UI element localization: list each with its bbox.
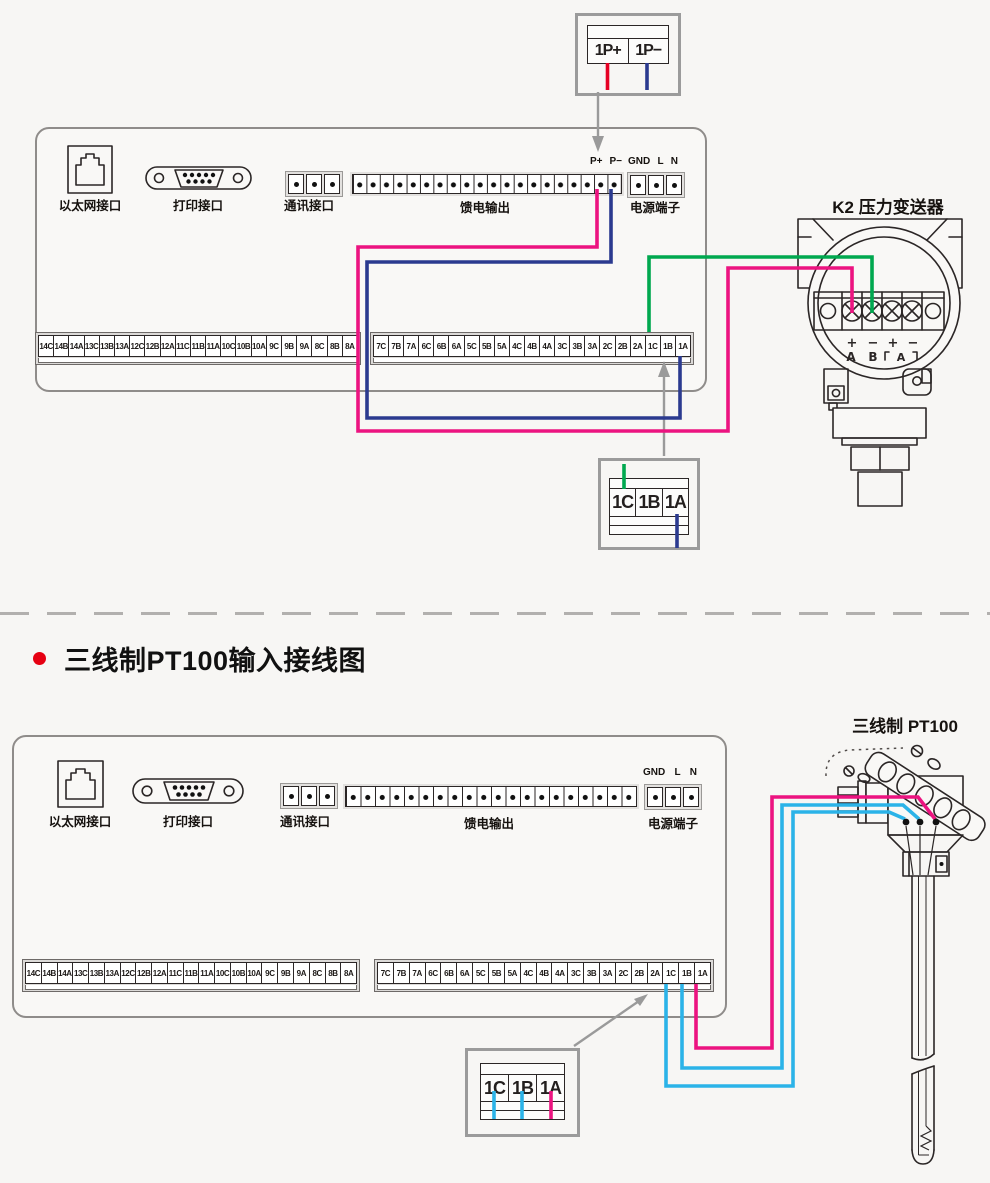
n-label: N [671, 156, 678, 167]
terminal-cell: 9B [277, 963, 293, 983]
terminal-cell: 13B [88, 963, 104, 983]
terminal-cell: 12C [129, 336, 144, 356]
terminal-screw-dot [636, 183, 641, 188]
comm-terminal [319, 786, 335, 806]
terminal-cell: 9C [261, 963, 277, 983]
terminal-cell: 11C [175, 336, 190, 356]
comm-port-block [285, 171, 343, 197]
section-title: 三线制PT100输入接线图 [64, 639, 366, 678]
comm-terminal [306, 174, 322, 194]
printer-port-label: 打印接口 [173, 195, 223, 214]
terminal-cell: 5C [464, 336, 479, 356]
terminal-cell: 2C [599, 336, 614, 356]
detail-terminal-cell: 1A [536, 1075, 564, 1101]
terminal-dot [933, 819, 940, 826]
power-terminal [648, 175, 664, 195]
internal-lead-wires [906, 826, 936, 875]
detail-terminal-cell: 1A [662, 489, 688, 516]
terminal-screw-dot [653, 795, 658, 800]
l-label: L [657, 156, 663, 167]
terminal-letter: B [868, 350, 877, 364]
power-terminal-block [627, 172, 685, 198]
terminal-cell: 3B [569, 336, 584, 356]
terminal-screw-dot [307, 794, 312, 799]
wire-1a-to-pt100-magenta [696, 797, 935, 1048]
terminal-cell: 13C [84, 336, 99, 356]
terminal-cell: 1C [662, 963, 678, 983]
gnd-label: GND [628, 156, 650, 167]
terminal-cell: 4C [520, 963, 536, 983]
detail-terminal-cell: 1B [635, 489, 661, 516]
terminal-cell: 14A [68, 336, 83, 356]
ethernet-port-icon [67, 145, 113, 194]
io-terminal-strip-14-8: 14C14B14A13C13B13A12C12B12A11C11B11A10C1… [22, 959, 360, 992]
terminal-cell: 2A [647, 963, 663, 983]
terminal-cell: 12A [151, 963, 167, 983]
terminal-cell: 13A [114, 336, 129, 356]
lid-swing-dotted-arc [826, 748, 903, 776]
power-terminal-label: 电源端子 [648, 813, 698, 832]
terminal-cell: 1B [678, 963, 694, 983]
terminal-screw-dot [672, 183, 677, 188]
comm-terminal [283, 786, 299, 806]
detail-table-footer [609, 526, 689, 535]
io-terminal-strip-7-1: 7C7B7A6C6B6A5C5B5A4C4B4A3C3B3A2C2B2A1C1B… [374, 959, 714, 992]
feed-output-strip [345, 786, 637, 807]
terminal-cell: 14A [57, 963, 73, 983]
bracket-marks [885, 352, 917, 360]
pt100-sensor-drawing [826, 746, 988, 1165]
terminal-cell: 9A [293, 963, 309, 983]
terminal-sign: + [847, 336, 858, 351]
transmitter-title: K2 压力变送器 [832, 193, 943, 218]
inset-table: 1P+1P− [587, 25, 669, 64]
detail-table-footer [480, 1111, 565, 1120]
inset-terminal-cell: 1P+ [588, 39, 628, 63]
terminal-cell: 1A [694, 963, 710, 983]
comm-port-label: 通讯接口 [284, 195, 334, 214]
terminal-cell: 6C [425, 963, 441, 983]
feed-output-label: 馈电输出 [460, 197, 510, 216]
terminal-cell: 5A [504, 963, 520, 983]
terminal-screw-dot [312, 182, 317, 187]
terminal-cell: 1A [675, 336, 690, 356]
terminal-cell: 13B [99, 336, 114, 356]
terminal-cell: 11A [198, 963, 214, 983]
terminal-cell: 5C [472, 963, 488, 983]
terminal-letter: A [846, 350, 856, 364]
terminal-cell: 6B [433, 336, 448, 356]
detail-table-footer [480, 1102, 565, 1111]
n-label: N [690, 767, 697, 778]
terminal-cell: 11C [167, 963, 183, 983]
ethernet-port-label: 以太网接口 [59, 195, 122, 214]
terminal-cell: 3A [584, 336, 599, 356]
terminal-screw-dot [689, 795, 694, 800]
ethernet-port-icon [57, 760, 104, 808]
terminal-cell: 11A [205, 336, 220, 356]
wiring-diagram-page: 1P+1P− 以太网接口 打印接口 通讯接口 馈电输出 P+ P− [0, 0, 990, 1183]
terminal-cell: 5B [488, 963, 504, 983]
terminal-cell: 9B [281, 336, 296, 356]
printer-port-label: 打印接口 [163, 811, 213, 830]
terminal-dot [903, 819, 910, 826]
bracket-letter: A [897, 351, 906, 364]
terminal-cell: 8B [327, 336, 342, 356]
terminal-cell: 7B [393, 963, 409, 983]
terminal-cell: 13C [72, 963, 88, 983]
terminal-screw-dot [671, 795, 676, 800]
terminal-cell: 5A [494, 336, 509, 356]
strip-ledge [373, 358, 691, 363]
terminal-cell: 10B [235, 336, 250, 356]
terminal-cell: 11B [183, 963, 199, 983]
transmitter-k2-drawing: + − + − A B A [798, 219, 962, 506]
feed-output-label: 馈电输出 [464, 813, 514, 832]
l-label: L [674, 767, 680, 778]
pt100-terminal-dots [903, 819, 940, 826]
terminal-cell: 2B [631, 963, 647, 983]
head-left-block [866, 783, 888, 823]
dashed-divider [0, 612, 990, 615]
terminal-cell: 10C [214, 963, 230, 983]
terminal-cell: 4B [536, 963, 552, 983]
comm-terminal [288, 174, 304, 194]
p-plus-minus-labels: P+ P− [590, 156, 622, 167]
printer-port-icon [145, 162, 252, 194]
detail-table: 1C1B1A [609, 478, 689, 535]
power-terminal [666, 175, 682, 195]
terminal-cell: 9C [266, 336, 281, 356]
terminal-cell: 1C [645, 336, 660, 356]
pt100-title: 三线制 PT100 [852, 712, 958, 737]
power-terminal-label: 电源端子 [630, 197, 680, 216]
terminal-cell: 11B [190, 336, 205, 356]
cable-gland [838, 781, 866, 823]
terminal-cell: 1B [660, 336, 675, 356]
terminal-cell: 14B [41, 963, 57, 983]
terminal-screw-dot [330, 182, 335, 187]
terminal-cell: 12B [135, 963, 151, 983]
terminal-cell: 4A [539, 336, 554, 356]
terminal-screw-dot [294, 182, 299, 187]
p-minus-label: P− [609, 156, 622, 167]
power-input-inset-box: 1P+1P− [575, 13, 681, 96]
power-terminal [630, 175, 646, 195]
open-lid [862, 749, 989, 844]
inset-terminal-cell: 1P− [628, 39, 669, 63]
bottom-instrument-panel: 以太网接口 打印接口 通讯接口 馈电输出 GND L N 电源端子 [12, 735, 727, 1018]
feed-output-strip [352, 174, 622, 194]
ethernet-port-label: 以太网接口 [49, 811, 112, 830]
terminal-sign: − [868, 336, 879, 351]
terminal-cell: 13A [104, 963, 120, 983]
input-terminal-detail-box: 1C1B1A [598, 458, 700, 550]
inset-table-header [587, 25, 669, 39]
power-terminal [665, 787, 681, 807]
strip-ledge [38, 358, 358, 363]
terminal-cell: 10A [251, 336, 266, 356]
terminal-cell: 2A [630, 336, 645, 356]
printer-port-icon [132, 774, 244, 808]
lid-screws [844, 746, 942, 784]
power-terminal [647, 787, 663, 807]
transmitter-mount-and-stem [824, 369, 931, 506]
terminal-cell: 8B [325, 963, 341, 983]
terminal-cell: 3C [567, 963, 583, 983]
comm-port-block [280, 783, 338, 809]
detail-table: 1C1B1A [480, 1063, 565, 1120]
probe-tube [912, 876, 934, 1164]
terminal-sign: + [888, 336, 899, 351]
strip-ledge [25, 985, 357, 990]
comm-terminal [301, 786, 317, 806]
terminal-cell: 6A [456, 963, 472, 983]
terminal-dot [917, 819, 924, 826]
terminal-cell: 7A [403, 336, 418, 356]
terminal-cell: 12B [144, 336, 159, 356]
terminal-cell: 8A [342, 336, 357, 356]
inset-cells: 1P+1P− [587, 39, 669, 64]
terminal-screw-dot [654, 183, 659, 188]
terminal-cell: 8A [340, 963, 356, 983]
p-plus-label: P+ [590, 156, 603, 167]
terminal-cell: 7B [388, 336, 403, 356]
terminal-cell: 7C [374, 336, 388, 356]
detail-cells: 1C1B1A [609, 489, 689, 517]
terminal-cell: 12A [160, 336, 175, 356]
power-terminal-block [644, 784, 702, 810]
terminal-cell: 12C [120, 963, 136, 983]
terminal-cell: 14B [53, 336, 68, 356]
terminal-cell: 4B [524, 336, 539, 356]
terminal-cell: 7C [378, 963, 393, 983]
strip-ledge [377, 985, 711, 990]
terminal-cell: 10C [220, 336, 235, 356]
gnd-label: GND [643, 767, 665, 778]
terminal-screw-dot [325, 794, 330, 799]
terminal-cell: 7A [409, 963, 425, 983]
gnd-l-n-labels: GND L N [628, 156, 678, 167]
top-instrument-panel: 以太网接口 打印接口 通讯接口 馈电输出 P+ P− GND L [35, 127, 707, 392]
terminal-cell: 2B [615, 336, 630, 356]
terminal-screw-dot [289, 794, 294, 799]
terminal-cell: 10B [230, 963, 246, 983]
detail-table-footer [609, 517, 689, 526]
terminal-cell: 8C [309, 963, 325, 983]
terminal-cell: 5B [479, 336, 494, 356]
section-bullet [33, 652, 46, 665]
detail-table-header [609, 478, 689, 489]
detail-cells: 1C1B1A [480, 1075, 565, 1102]
power-terminal [683, 787, 699, 807]
screw-terminals [842, 301, 922, 321]
terminal-cell: 6C [418, 336, 433, 356]
terminal-cell: 14C [26, 963, 41, 983]
comm-port-label: 通讯接口 [280, 811, 330, 830]
detail-terminal-cell: 1B [508, 1075, 536, 1101]
comm-terminal [324, 174, 340, 194]
terminal-cell: 8C [311, 336, 326, 356]
terminal-cell: 10A [246, 963, 262, 983]
terminal-cell: 4C [509, 336, 524, 356]
terminal-cell: 2C [615, 963, 631, 983]
gnd-l-n-labels: GND L N [643, 767, 697, 778]
input-terminal-detail-box: 1C1B1A [465, 1048, 580, 1137]
terminal-sign: − [908, 336, 919, 351]
pt100-resistor-element [921, 1126, 931, 1150]
detail-table-header [480, 1063, 565, 1075]
terminal-cell: 14C [39, 336, 53, 356]
io-terminal-strip-7-1: 7C7B7A6C6B6A5C5B5A4C4B4A3C3B3A2C2B2A1C1B… [370, 332, 694, 365]
probe-collar [903, 852, 949, 876]
head-funnel [888, 835, 963, 852]
io-terminal-strip-14-8: 14C14B14A13C13B13A12C12B12A11C11B11A10C1… [35, 332, 361, 365]
terminal-cell: 6A [448, 336, 463, 356]
terminal-cell: 3C [554, 336, 569, 356]
detail-terminal-cell: 1C [481, 1075, 508, 1101]
terminal-cell: 3B [583, 963, 599, 983]
terminal-cell: 6B [440, 963, 456, 983]
head-body [888, 776, 963, 835]
terminal-cell: 3A [599, 963, 615, 983]
detail-terminal-cell: 1C [610, 489, 635, 516]
terminal-cell: 9A [296, 336, 311, 356]
terminal-cell: 4A [551, 963, 567, 983]
